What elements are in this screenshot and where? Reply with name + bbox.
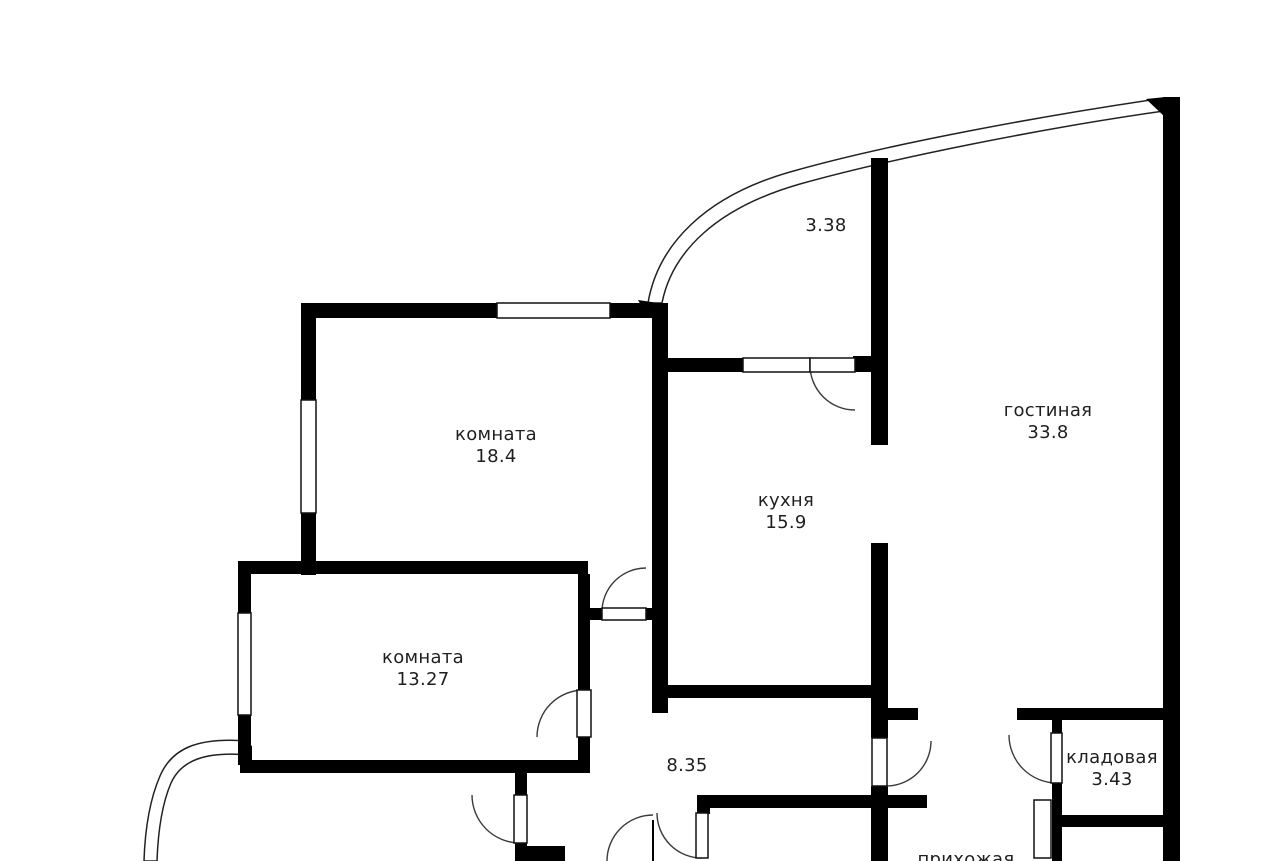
door-swing-arc (602, 568, 646, 612)
wall (871, 543, 888, 698)
wall (240, 760, 588, 773)
room-label-hallway: 8.35 (666, 755, 707, 777)
room-name: кладовая (1066, 747, 1158, 769)
wall (853, 356, 873, 372)
wall (1062, 815, 1163, 827)
wall (1052, 720, 1062, 733)
wall (515, 843, 527, 861)
wall (697, 795, 710, 814)
door-leaf (602, 608, 646, 620)
window (497, 303, 610, 318)
door-arcs (472, 365, 1057, 861)
door-swing-arc (1009, 735, 1057, 783)
window (238, 613, 251, 715)
room-label-storage: кладовая 3.43 (1066, 747, 1158, 791)
room-label-entry-hall: прихожая (917, 849, 1014, 861)
room-label-kitchen: кухня 15.9 (758, 490, 814, 534)
wall (871, 158, 888, 445)
floor-plan: комната 18.4 кухня 15.9 гостиная 33.8 3.… (0, 0, 1280, 861)
wall (301, 303, 497, 318)
balcony-curved-wall-top (648, 98, 1164, 303)
wall (1052, 783, 1062, 861)
room-name: комната (455, 424, 537, 446)
room-area: 3.38 (805, 215, 846, 237)
room-area: 18.4 (455, 446, 537, 468)
door-leaf (810, 358, 855, 372)
wall (238, 574, 251, 615)
window (743, 358, 810, 372)
room-name: кухня (758, 490, 814, 512)
door-leaf (872, 738, 887, 786)
wall (1017, 708, 1163, 720)
room-label-komnata-13-27: комната 13.27 (382, 647, 464, 691)
wall (578, 737, 590, 773)
room-name: гостиная (1004, 400, 1093, 422)
wall (301, 316, 316, 400)
door-leaf (577, 690, 591, 737)
wall (887, 795, 927, 808)
room-label-living-room: гостиная 33.8 (1004, 400, 1093, 444)
balcony-curved-wall-bottom (144, 740, 249, 861)
wall (665, 358, 743, 372)
room-label-komnata-18-4: комната 18.4 (455, 424, 537, 468)
wall (646, 608, 668, 620)
wall (887, 708, 918, 720)
room-area: 3.43 (1066, 769, 1158, 791)
wall (697, 795, 888, 808)
wall (578, 574, 590, 690)
room-area: 33.8 (1004, 422, 1093, 444)
door-swing-arc (886, 741, 931, 786)
wall (527, 846, 565, 861)
room-area: 8.35 (666, 755, 707, 777)
door-leaf (514, 795, 527, 843)
door-swing-arc (472, 795, 520, 843)
window (301, 400, 316, 513)
room-label-balcony-top: 3.38 (805, 215, 846, 237)
wall (582, 608, 602, 620)
door-leaf (1051, 733, 1062, 783)
room-name: комната (382, 647, 464, 669)
wall (238, 561, 588, 574)
door-leaf (696, 813, 708, 858)
wall (658, 685, 873, 698)
wall (1163, 97, 1180, 861)
door-swing-arc (607, 815, 653, 861)
room-name: прихожая (917, 849, 1014, 861)
room-area: 13.27 (382, 669, 464, 691)
door-leaf (1034, 800, 1051, 858)
wall (515, 773, 527, 795)
wall (871, 698, 888, 738)
room-area: 15.9 (758, 512, 814, 534)
